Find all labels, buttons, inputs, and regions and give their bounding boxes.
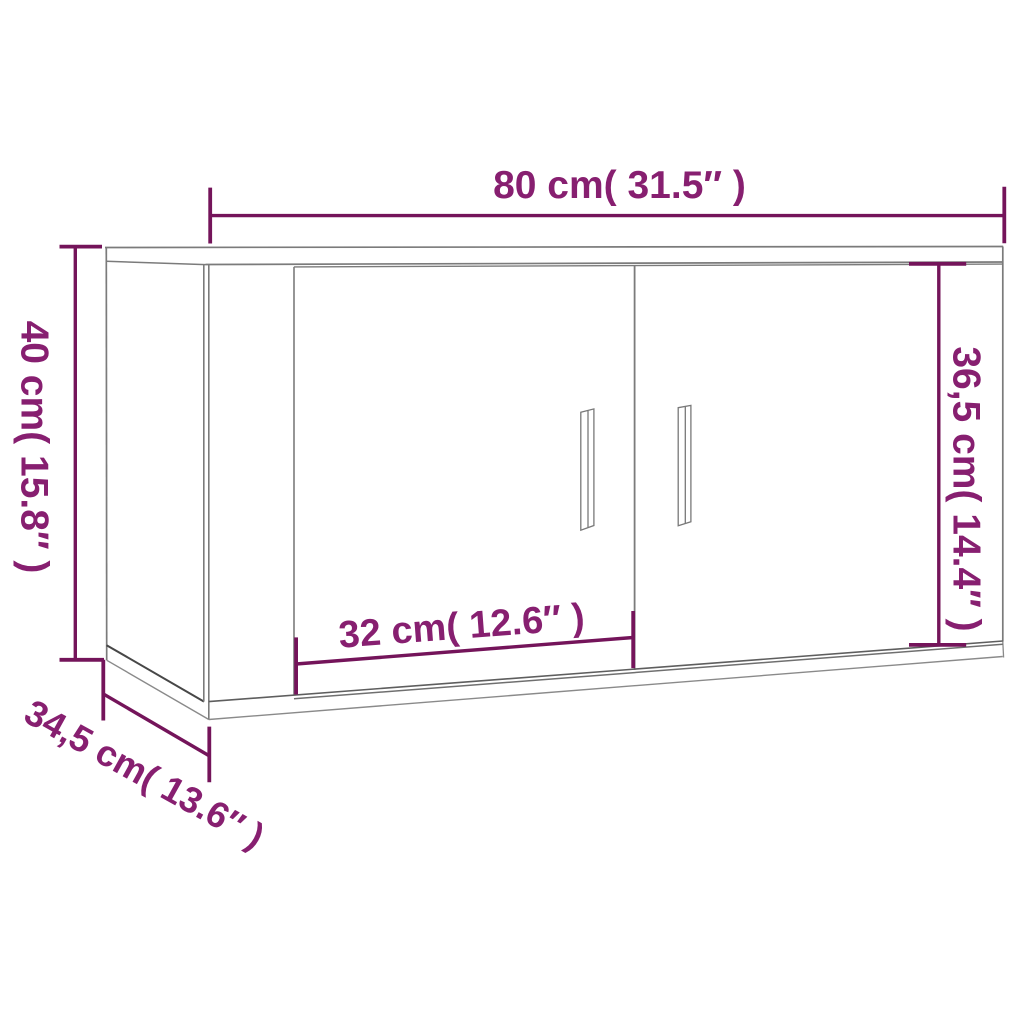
svg-text:40 cm( 15.8″ ): 40 cm( 15.8″ ) <box>13 321 56 574</box>
svg-text:80 cm( 31.5″ ): 80 cm( 31.5″ ) <box>493 164 746 207</box>
svg-text:36,5 cm( 14.4″ ): 36,5 cm( 14.4″ ) <box>945 346 988 631</box>
